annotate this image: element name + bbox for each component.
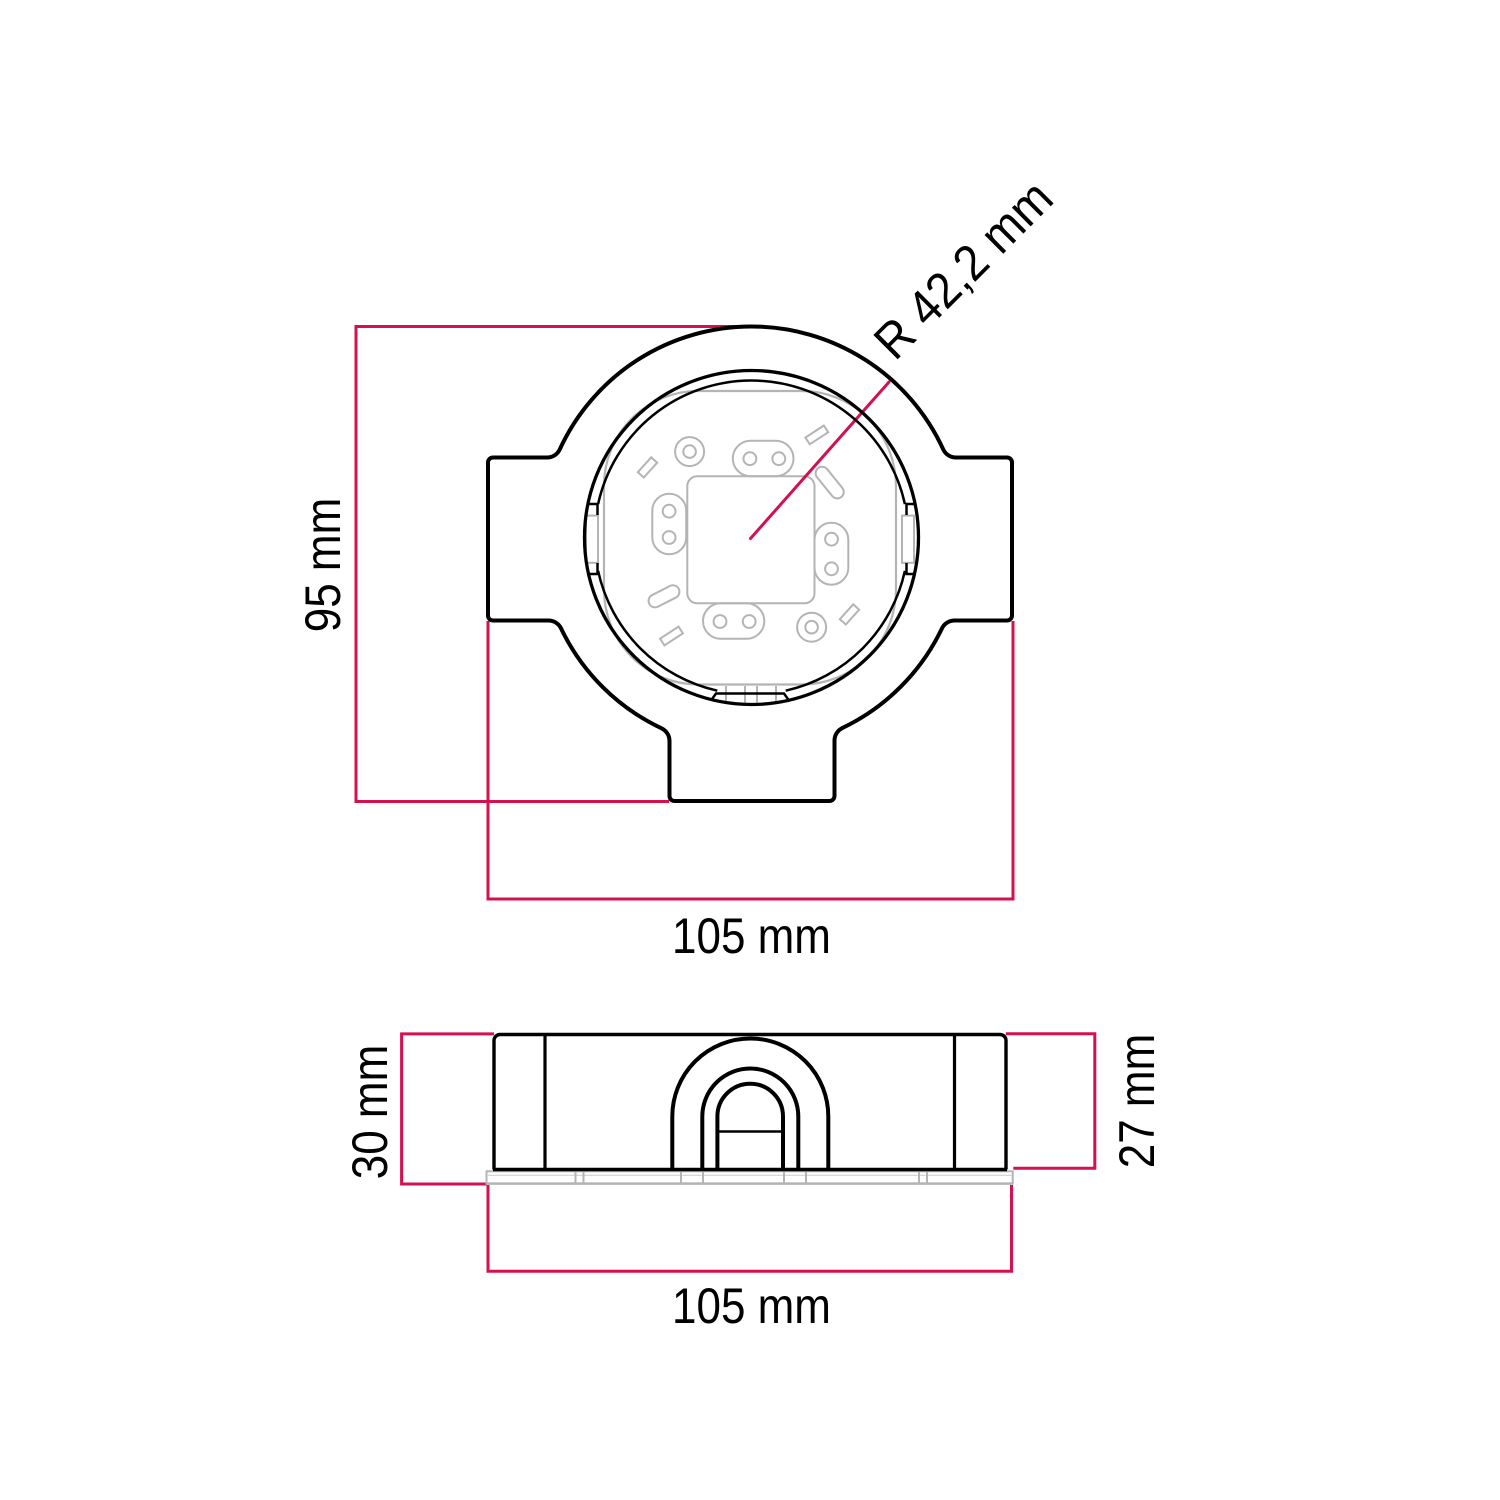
svg-text:105 mm: 105 mm: [672, 907, 831, 963]
svg-text:27 mm: 27 mm: [1108, 1034, 1164, 1168]
svg-text:30 mm: 30 mm: [341, 1045, 397, 1179]
svg-text:95 mm: 95 mm: [294, 498, 350, 632]
svg-text:105 mm: 105 mm: [672, 1277, 831, 1333]
